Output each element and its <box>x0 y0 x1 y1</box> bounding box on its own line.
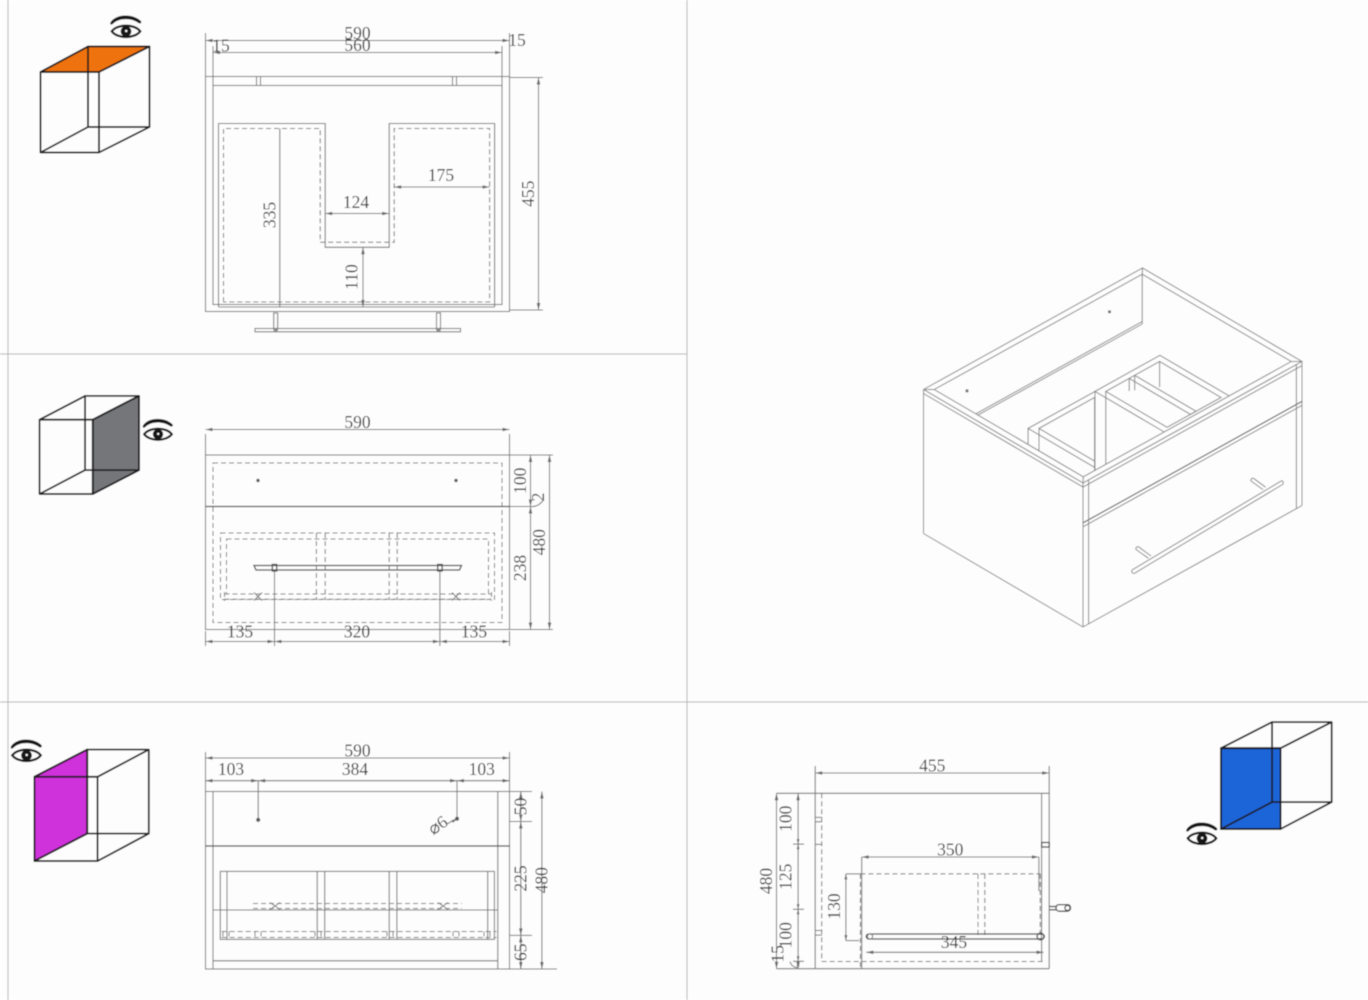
svg-text:125: 125 <box>776 863 796 890</box>
svg-text:590: 590 <box>344 412 371 432</box>
svg-text:480: 480 <box>529 529 549 556</box>
svg-text:124: 124 <box>343 192 370 212</box>
svg-text:335: 335 <box>259 202 279 229</box>
svg-text:15: 15 <box>212 36 230 56</box>
svg-text:130: 130 <box>824 893 844 920</box>
svg-text:225: 225 <box>510 865 530 892</box>
svg-text:135: 135 <box>461 622 488 642</box>
svg-text:590: 590 <box>344 741 371 761</box>
svg-text:110: 110 <box>342 264 362 290</box>
svg-text:480: 480 <box>756 868 776 895</box>
svg-text:455: 455 <box>919 756 946 776</box>
svg-text:50: 50 <box>510 798 530 816</box>
svg-text:65: 65 <box>510 943 530 961</box>
svg-text:350: 350 <box>937 840 964 860</box>
svg-text:15: 15 <box>508 30 526 50</box>
svg-text:455: 455 <box>518 180 538 207</box>
svg-text:135: 135 <box>227 622 254 642</box>
svg-text:238: 238 <box>510 555 530 582</box>
svg-text:480: 480 <box>532 867 552 894</box>
svg-text:103: 103 <box>469 759 496 779</box>
svg-text:2: 2 <box>528 493 548 502</box>
svg-text:100: 100 <box>510 467 530 494</box>
svg-text:384: 384 <box>342 759 369 779</box>
svg-text:175: 175 <box>428 165 455 185</box>
svg-text:103: 103 <box>218 759 245 779</box>
svg-text:345: 345 <box>941 932 968 952</box>
svg-text:320: 320 <box>344 622 371 642</box>
svg-text:100: 100 <box>776 805 796 832</box>
svg-text:15: 15 <box>768 945 788 963</box>
svg-text:100: 100 <box>776 922 796 949</box>
svg-text:560: 560 <box>344 35 371 55</box>
